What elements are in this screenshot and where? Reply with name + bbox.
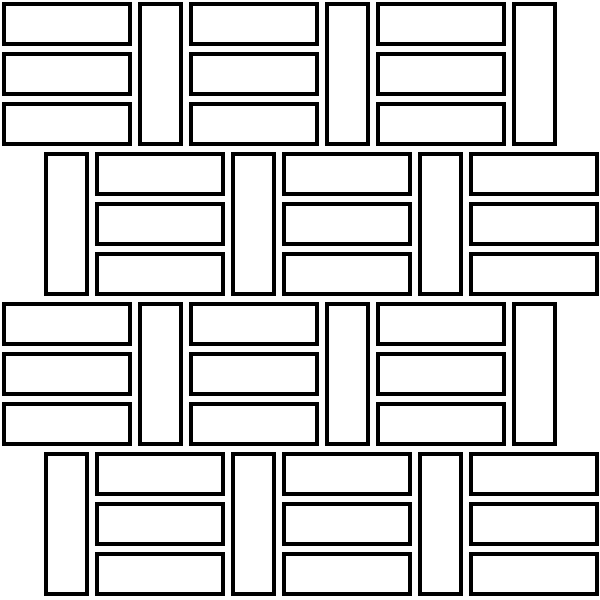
- vertical-brick: [512, 302, 557, 446]
- horizontal-brick: [95, 452, 225, 496]
- horizontal-brick: [2, 102, 132, 146]
- horizontal-brick: [469, 252, 599, 296]
- horizontal-brick: [95, 552, 225, 596]
- vertical-brick: [138, 2, 183, 146]
- vertical-brick: [325, 302, 370, 446]
- vertical-brick: [231, 452, 276, 596]
- horizontal-brick: [95, 152, 225, 196]
- horizontal-brick: [2, 402, 132, 446]
- horizontal-brick: [469, 152, 599, 196]
- horizontal-brick: [282, 452, 412, 496]
- vertical-brick: [138, 302, 183, 446]
- vertical-brick: [44, 152, 89, 296]
- vertical-brick: [44, 452, 89, 596]
- horizontal-brick: [189, 2, 319, 46]
- horizontal-brick: [376, 52, 506, 96]
- horizontal-brick: [282, 502, 412, 546]
- vertical-brick: [418, 452, 463, 596]
- horizontal-brick: [2, 302, 132, 346]
- vertical-brick: [231, 152, 276, 296]
- horizontal-brick: [189, 302, 319, 346]
- horizontal-brick: [2, 2, 132, 46]
- horizontal-brick: [189, 52, 319, 96]
- horizontal-brick: [95, 252, 225, 296]
- horizontal-brick: [469, 502, 599, 546]
- horizontal-brick: [282, 202, 412, 246]
- horizontal-brick: [189, 352, 319, 396]
- horizontal-brick: [376, 2, 506, 46]
- horizontal-brick: [376, 102, 506, 146]
- horizontal-brick: [2, 52, 132, 96]
- vertical-brick: [418, 152, 463, 296]
- horizontal-brick: [376, 352, 506, 396]
- horizontal-brick: [469, 202, 599, 246]
- horizontal-brick: [376, 402, 506, 446]
- horizontal-brick: [282, 252, 412, 296]
- basketweave-pattern: [0, 0, 600, 600]
- horizontal-brick: [469, 552, 599, 596]
- vertical-brick: [512, 2, 557, 146]
- horizontal-brick: [469, 452, 599, 496]
- horizontal-brick: [2, 352, 132, 396]
- horizontal-brick: [282, 152, 412, 196]
- horizontal-brick: [282, 552, 412, 596]
- horizontal-brick: [189, 102, 319, 146]
- horizontal-brick: [95, 502, 225, 546]
- horizontal-brick: [376, 302, 506, 346]
- horizontal-brick: [189, 402, 319, 446]
- vertical-brick: [325, 2, 370, 146]
- horizontal-brick: [95, 202, 225, 246]
